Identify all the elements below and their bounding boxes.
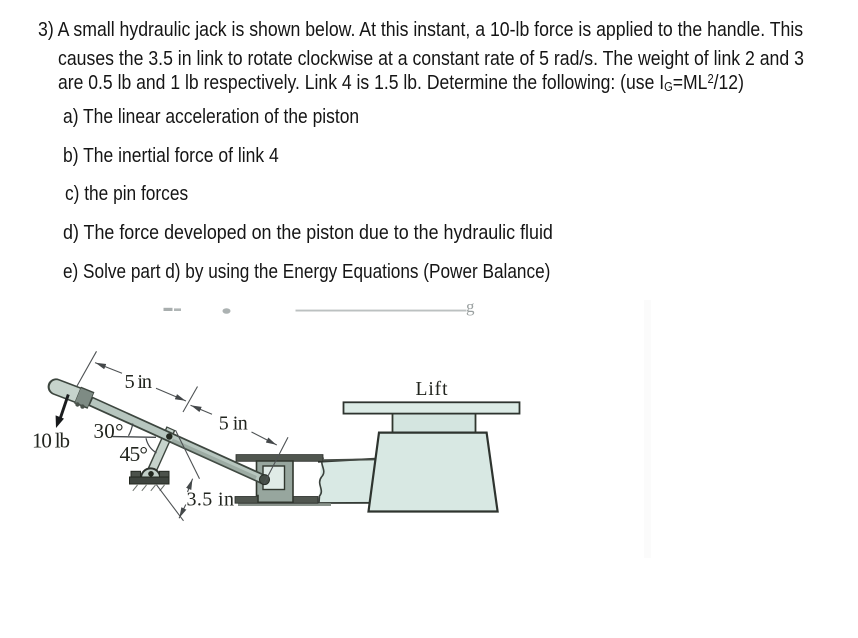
svg-text:3.5 in: 3.5 in: [187, 489, 235, 511]
svg-text:30°: 30°: [94, 419, 124, 443]
svg-text:45°: 45°: [120, 442, 149, 466]
svg-text:10 lb: 10 lb: [32, 428, 70, 452]
svg-text:Lift: Lift: [416, 379, 449, 400]
svg-text:5 in: 5 in: [219, 412, 248, 434]
svg-text:5 in: 5 in: [125, 371, 153, 393]
svg-text:g: g: [466, 297, 475, 316]
